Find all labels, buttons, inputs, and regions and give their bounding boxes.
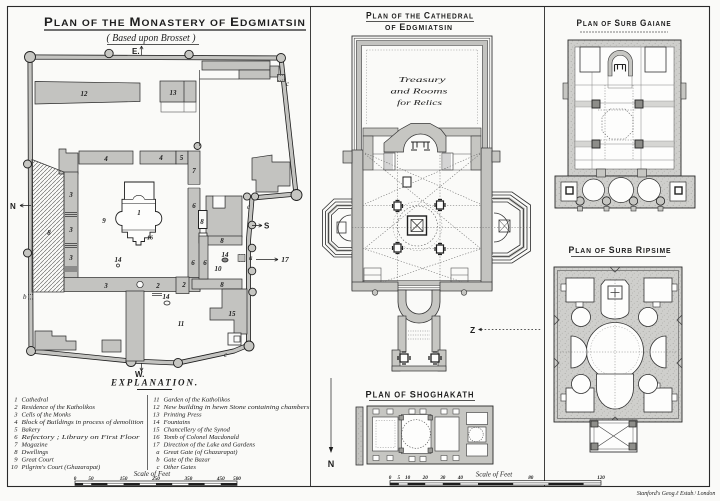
svg-text:150: 150 bbox=[120, 476, 128, 482]
svg-text:Stanford's Geog.ℓ Estab.ᵗ Lond: Stanford's Geog.ℓ Estab.ᵗ London bbox=[637, 490, 716, 497]
svg-text:80: 80 bbox=[528, 475, 534, 481]
svg-text:4: 4 bbox=[103, 155, 108, 163]
svg-text:5: 5 bbox=[398, 475, 401, 481]
svg-text:PLAN OF THE MONASTERY OF EDGMI: PLAN OF THE MONASTERY OF EDGMIATSIN bbox=[44, 15, 306, 29]
svg-text:PLAN OF SURB GAIANE: PLAN OF SURB GAIANE bbox=[577, 18, 672, 29]
svg-text:11: 11 bbox=[178, 320, 185, 328]
svg-text:Block of Buildings in process: Block of Buildings in process of demolit… bbox=[22, 419, 145, 426]
svg-text:Refectory ; Library on First: Refectory ; Library on First Floor bbox=[20, 434, 140, 441]
svg-text:9: 9 bbox=[102, 217, 106, 225]
svg-text:50: 50 bbox=[88, 476, 94, 482]
svg-text:EXPLANATION.: EXPLANATION. bbox=[110, 379, 199, 389]
svg-text:30: 30 bbox=[439, 475, 446, 481]
svg-text:Z: Z bbox=[470, 325, 475, 335]
svg-text:3: 3 bbox=[13, 412, 18, 419]
svg-text:3: 3 bbox=[68, 226, 73, 234]
svg-text:14: 14 bbox=[163, 293, 171, 301]
svg-text:PLAN OF THE CATHEDRAL: PLAN OF THE CATHEDRAL bbox=[366, 11, 474, 22]
svg-text:14: 14 bbox=[153, 419, 160, 426]
svg-text:Tomb of Colonel Macdonald: Tomb of Colonel Macdonald bbox=[164, 434, 240, 441]
svg-text:6: 6 bbox=[203, 259, 207, 267]
svg-text:Cathedral: Cathedral bbox=[22, 397, 49, 404]
svg-text:0: 0 bbox=[389, 475, 392, 481]
svg-text:6: 6 bbox=[192, 202, 196, 210]
svg-text:120: 120 bbox=[597, 475, 605, 481]
svg-text:14: 14 bbox=[115, 256, 123, 264]
svg-text:a: a bbox=[249, 254, 253, 262]
svg-text:Scale of Feet: Scale of Feet bbox=[476, 471, 514, 479]
svg-text:Magazine: Magazine bbox=[21, 442, 48, 449]
svg-text:Printing Press: Printing Press bbox=[163, 412, 202, 419]
svg-text:Treasury: Treasury bbox=[399, 76, 447, 84]
svg-text:1: 1 bbox=[137, 209, 141, 217]
svg-text:4: 4 bbox=[158, 154, 163, 162]
svg-text:15: 15 bbox=[229, 310, 237, 318]
svg-text:250: 250 bbox=[151, 476, 160, 482]
svg-text:Residence of the Katholikos: Residence of the Katholikos bbox=[21, 404, 96, 411]
svg-text:Fountains: Fountains bbox=[163, 419, 191, 426]
svg-text:N: N bbox=[10, 202, 16, 211]
svg-text:12: 12 bbox=[81, 90, 89, 98]
svg-text:10: 10 bbox=[215, 265, 223, 273]
svg-text:6: 6 bbox=[191, 259, 195, 267]
svg-text:7: 7 bbox=[192, 167, 196, 175]
svg-text:Gate of the Bazar: Gate of the Bazar bbox=[164, 457, 211, 464]
svg-text:and Rooms: and Rooms bbox=[391, 88, 448, 96]
svg-text:10: 10 bbox=[405, 475, 411, 481]
svg-text:8: 8 bbox=[200, 218, 204, 226]
svg-text:N: N bbox=[328, 459, 335, 469]
svg-text:11: 11 bbox=[153, 397, 159, 404]
svg-text:5: 5 bbox=[180, 154, 184, 162]
svg-text:15: 15 bbox=[153, 427, 160, 434]
svg-text:OF EDGMIATSIN: OF EDGMIATSIN bbox=[385, 22, 453, 33]
svg-text:450: 450 bbox=[216, 476, 225, 482]
svg-text:13: 13 bbox=[170, 89, 178, 97]
svg-text:Chancellery of the Synod: Chancellery of the Synod bbox=[164, 427, 231, 434]
svg-text:Garden of the Katholikos: Garden of the Katholikos bbox=[164, 397, 231, 404]
svg-text:500: 500 bbox=[233, 476, 241, 482]
svg-text:Bakery: Bakery bbox=[22, 427, 41, 434]
svg-text:New building in hewn Stone con: New building in hewn Stone containing ch… bbox=[162, 404, 310, 411]
svg-text:Cells of the Monks: Cells of the Monks bbox=[22, 412, 72, 419]
svg-text:Great Court: Great Court bbox=[22, 457, 54, 464]
svg-text:Dwellings: Dwellings bbox=[21, 449, 49, 456]
svg-text:13: 13 bbox=[153, 412, 160, 419]
svg-text:Direction of the Lake and Gard: Direction of the Lake and Gardens bbox=[163, 442, 256, 449]
svg-text:3: 3 bbox=[68, 254, 73, 262]
svg-text:E.: E. bbox=[132, 47, 140, 56]
svg-text:3: 3 bbox=[68, 191, 73, 199]
svg-text:350: 350 bbox=[184, 476, 193, 482]
svg-text:3: 3 bbox=[103, 282, 108, 290]
svg-text:PLAN OF SHOGHAKATH: PLAN OF SHOGHAKATH bbox=[366, 389, 475, 400]
svg-text:1: 1 bbox=[14, 397, 17, 404]
svg-text:8: 8 bbox=[47, 229, 51, 237]
svg-text:12: 12 bbox=[153, 404, 160, 411]
svg-text:0: 0 bbox=[74, 476, 77, 482]
svg-text:8: 8 bbox=[220, 237, 224, 245]
svg-text:40: 40 bbox=[457, 475, 464, 481]
svg-text:Pilgrim's Court (Ghazarapat): Pilgrim's Court (Ghazarapat) bbox=[21, 464, 101, 471]
svg-text:S: S bbox=[264, 222, 270, 231]
svg-text:16: 16 bbox=[147, 236, 153, 242]
svg-text:17: 17 bbox=[281, 255, 289, 264]
svg-text:for Relics: for Relics bbox=[397, 99, 442, 107]
svg-text:2: 2 bbox=[155, 282, 160, 290]
svg-text:b: b bbox=[23, 293, 27, 301]
svg-text:20: 20 bbox=[422, 475, 429, 481]
svg-text:( Based upon Brosset ): ( Based upon Brosset ) bbox=[107, 33, 196, 44]
svg-text:PLAN OF SURB RIPSIME: PLAN OF SURB RIPSIME bbox=[569, 245, 672, 256]
svg-text:Great Gate (of Ghazarapat): Great Gate (of Ghazarapat) bbox=[164, 449, 238, 456]
svg-text:10: 10 bbox=[11, 464, 18, 471]
svg-text:17: 17 bbox=[153, 442, 160, 449]
svg-text:16: 16 bbox=[153, 434, 160, 441]
svg-text:8: 8 bbox=[220, 281, 224, 289]
svg-text:2: 2 bbox=[181, 281, 186, 289]
